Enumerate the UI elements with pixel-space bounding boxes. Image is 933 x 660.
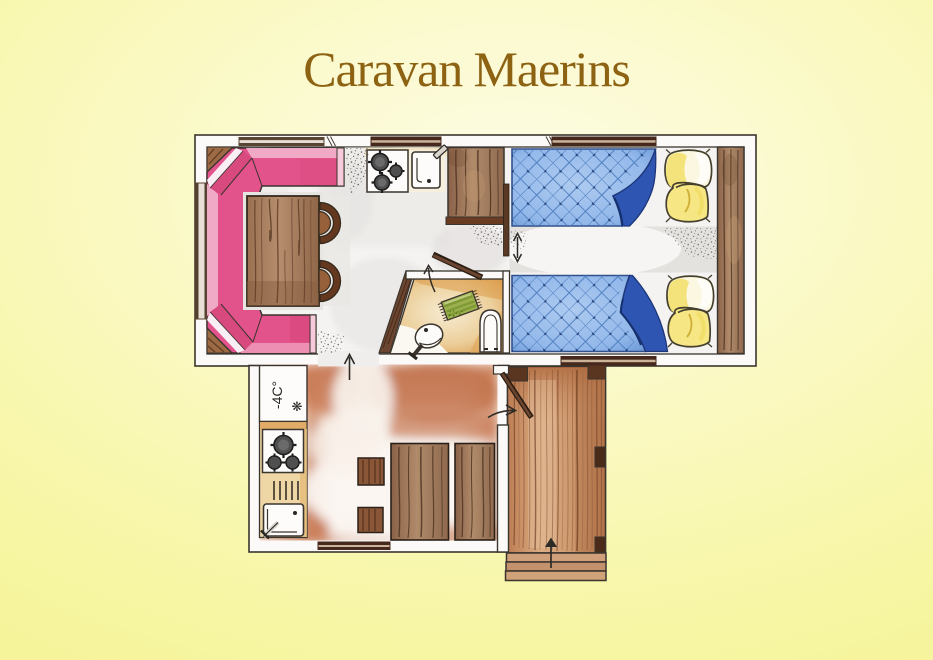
svg-text:-4C°: -4C°	[269, 381, 285, 409]
svg-text:❋: ❋	[292, 399, 303, 414]
